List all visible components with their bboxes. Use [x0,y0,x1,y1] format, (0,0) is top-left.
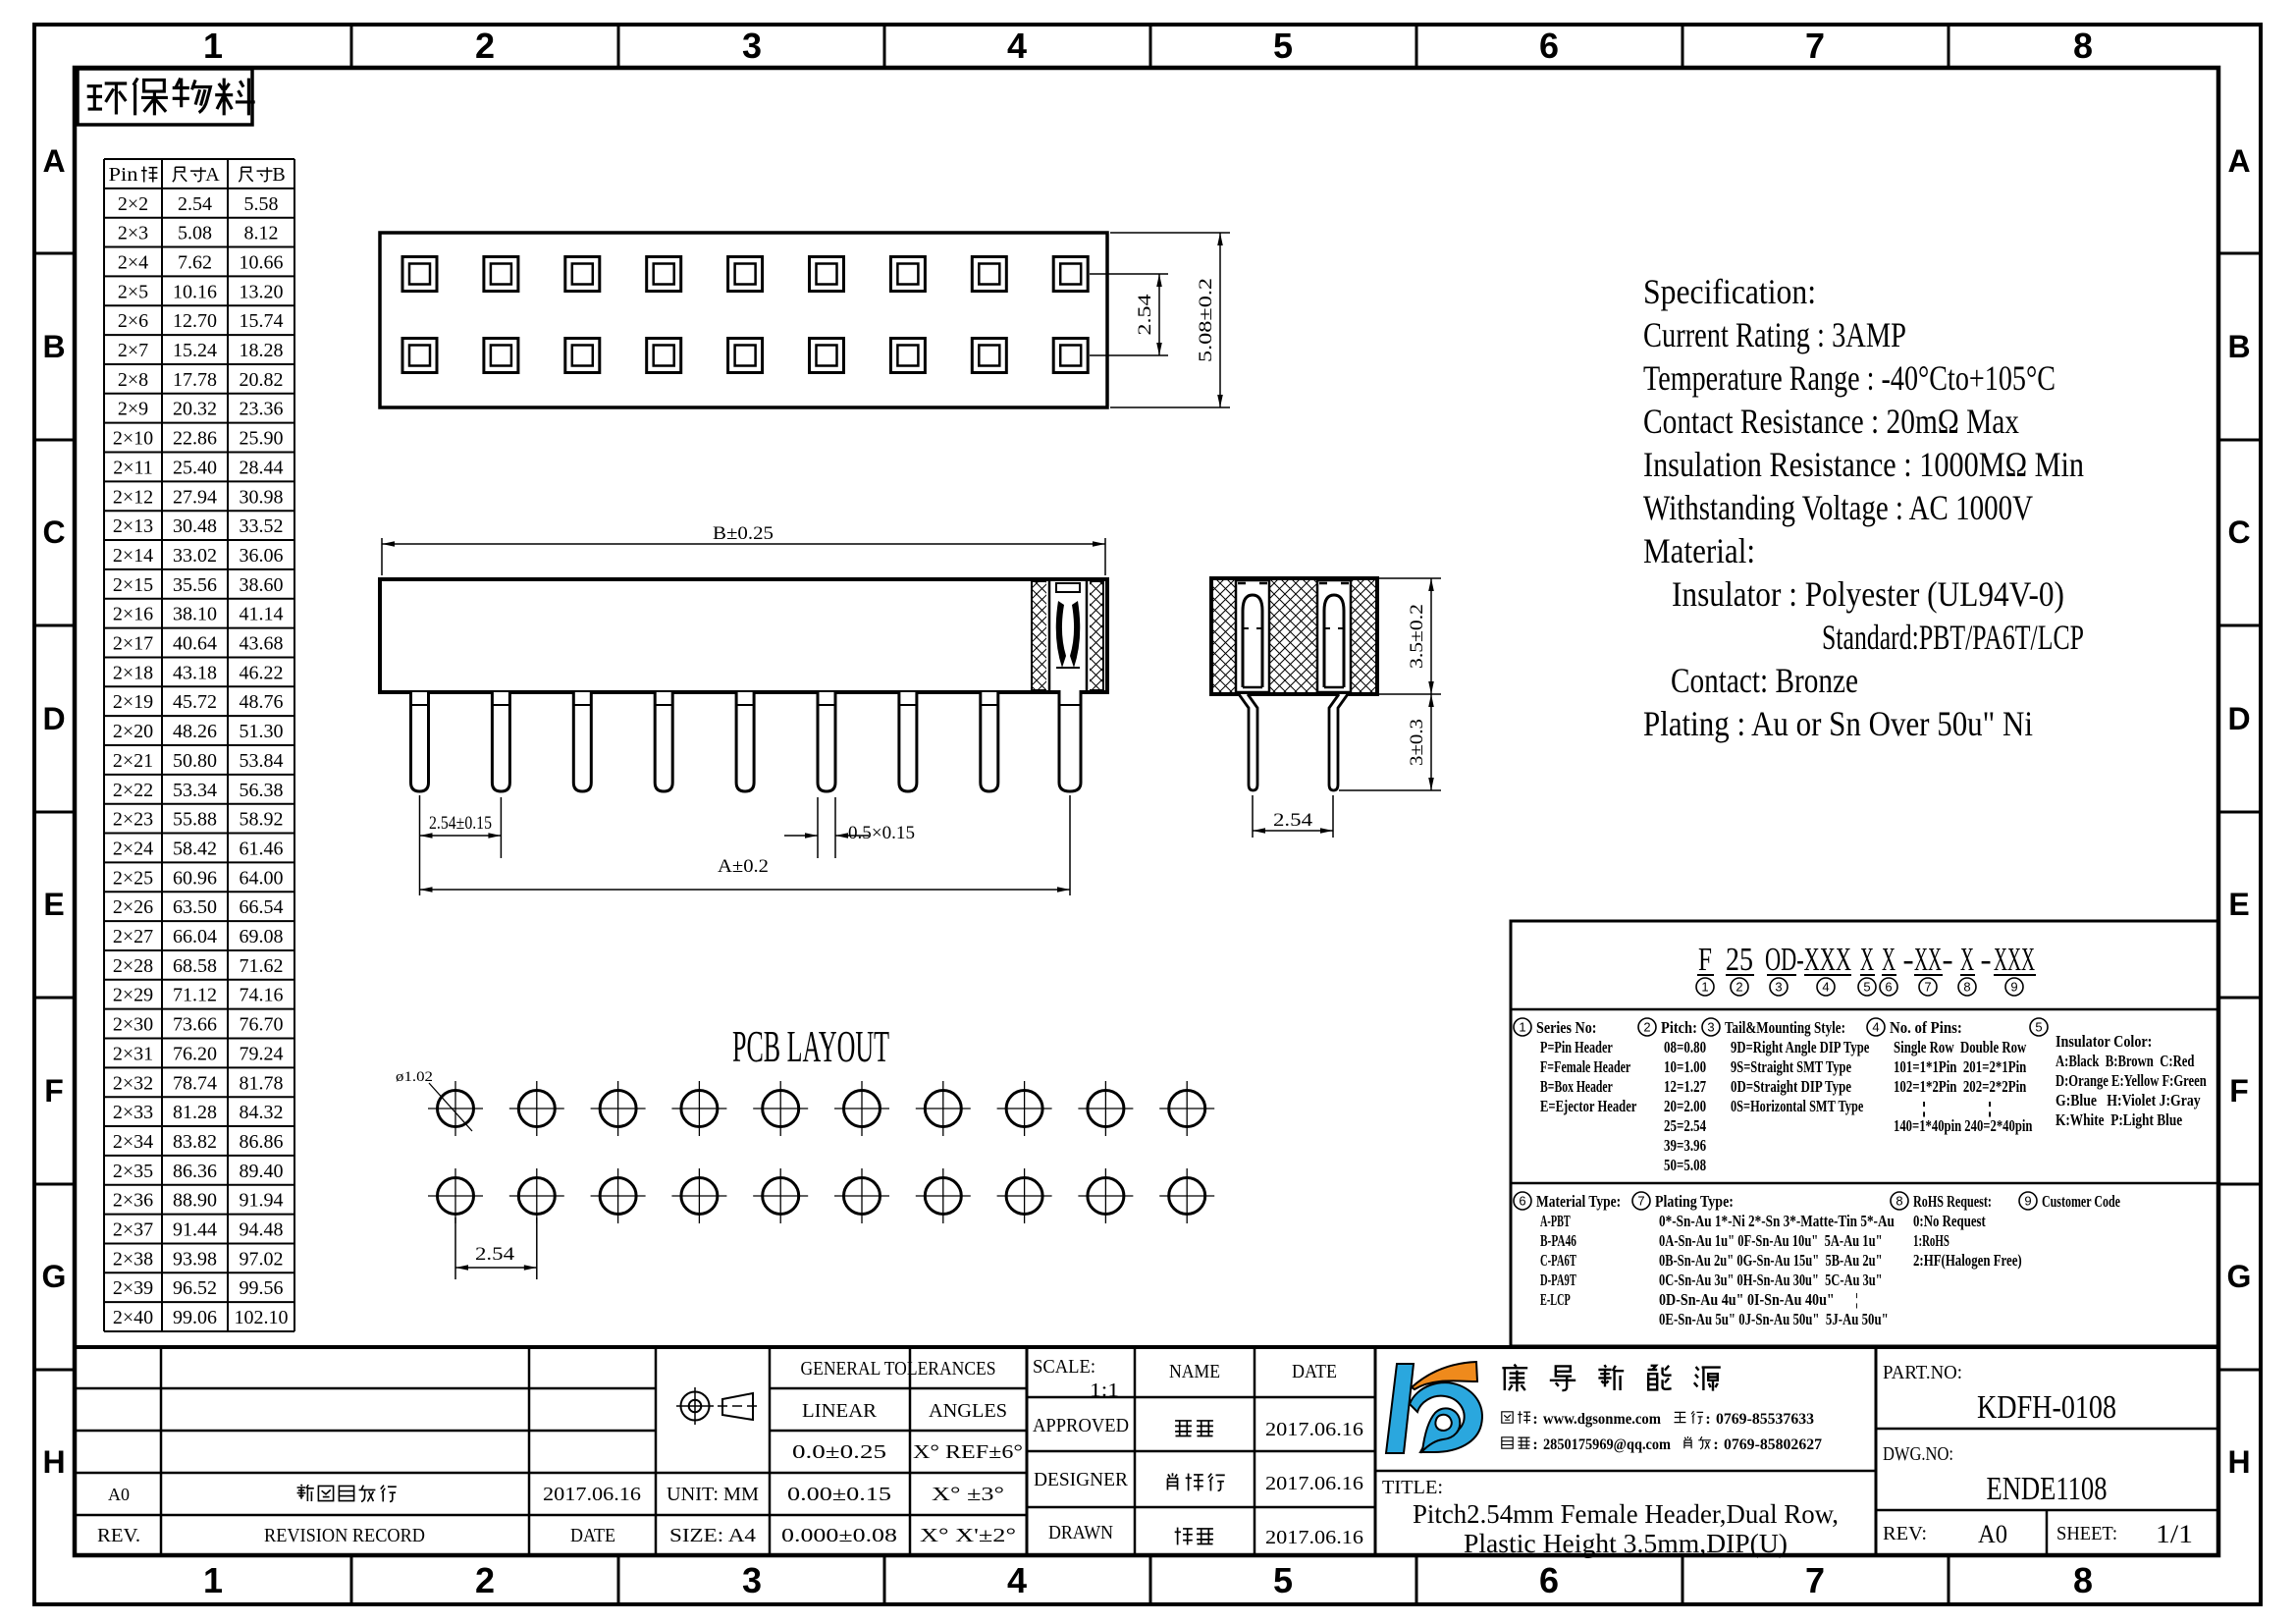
svg-text:1: 1 [203,1560,223,1600]
svg-text:2017.06.16: 2017.06.16 [1265,1527,1363,1548]
svg-text:KDFH-0108: KDFH-0108 [1977,1389,2116,1426]
svg-text:Insulator : Polyester (UL94V-0: Insulator : Polyester (UL94V-0) [1672,574,2064,614]
svg-text:Specification:: Specification: [1643,272,1816,311]
svg-text:G: G [42,1259,67,1294]
svg-text:1: 1 [1701,980,1708,995]
svg-text:E=Ejector Header: E=Ejector Header [1540,1097,1636,1115]
svg-text:7: 7 [1924,980,1931,995]
svg-text:2×33: 2×33 [113,1102,153,1123]
svg-text:3: 3 [742,1560,762,1600]
svg-text:2×3: 2×3 [118,223,148,244]
svg-text:X: X [1960,942,1974,978]
svg-text:25=2.54: 25=2.54 [1664,1116,1706,1135]
svg-text:2×39: 2×39 [113,1277,153,1299]
svg-text:41.14: 41.14 [240,604,284,625]
svg-text::: : [1532,1411,1537,1428]
svg-text:68.58: 68.58 [173,955,217,977]
svg-text:DATE: DATE [1292,1361,1337,1382]
svg-text:P=Pin Header: P=Pin Header [1540,1038,1613,1056]
svg-text:101=1*1Pin 201=2*1Pin: 101=1*1Pin 201=2*1Pin [1894,1057,2026,1076]
svg-text:1:RoHS: 1:RoHS [1913,1231,1949,1250]
svg-text:35.56: 35.56 [173,574,217,596]
svg-text:0C-Sn-Au 3u" 0H-Sn-Au 30u" 5C: 0C-Sn-Au 3u" 0H-Sn-Au 30u" 5C-Au 3u" [1659,1271,1883,1289]
svg-text:4: 4 [1872,1020,1879,1035]
svg-text:76.70: 76.70 [240,1014,284,1036]
svg-text:Insulation Resistance : 1000MΩ: Insulation Resistance : 1000MΩ Min [1643,445,2084,484]
svg-text:17.78: 17.78 [173,369,217,391]
svg-text:F=Female Header: F=Female Header [1540,1057,1630,1076]
svg-text:2×11: 2×11 [113,457,153,478]
svg-text:¦: ¦ [1987,1099,1993,1117]
svg-text:2×24: 2×24 [113,838,153,859]
svg-text:5.58: 5.58 [244,193,279,215]
svg-text:D-PA9T: D-PA9T [1540,1271,1576,1289]
svg-text:Temperature Range : -40°Cto+10: Temperature Range : -40°Cto+105°C [1643,358,2056,398]
svg-text:PART.NO:: PART.NO: [1883,1362,1962,1383]
svg-text:0D=Straight DIP Type: 0D=Straight DIP Type [1731,1077,1851,1096]
svg-text:2×35: 2×35 [113,1161,153,1182]
svg-text:2×18: 2×18 [113,662,153,683]
svg-text:2×10: 2×10 [113,428,153,450]
svg-text:2×2: 2×2 [118,193,148,215]
svg-text:www.dgsonme.com: www.dgsonme.com [1543,1411,1662,1428]
svg-text:45.72: 45.72 [173,691,217,713]
svg-text:2:HF(Halogen Free): 2:HF(Halogen Free) [1913,1251,2022,1270]
svg-text:Plating : Au or Sn Over 50u" N: Plating : Au or Sn Over 50u" Ni [1643,704,2033,743]
svg-text:0*-Sn-Au 1*-Ni 2*-Sn 3*-Matte-: 0*-Sn-Au 1*-Ni 2*-Sn 3*-Matte-Tin 5*-Au [1659,1212,1895,1230]
svg-text:79.24: 79.24 [240,1043,284,1064]
svg-text:ø1.02: ø1.02 [396,1069,433,1085]
svg-text:74.16: 74.16 [240,985,284,1006]
svg-text:28.44: 28.44 [240,457,284,478]
svg-text:91.44: 91.44 [173,1219,217,1241]
svg-text:REVISION RECORD: REVISION RECORD [264,1525,425,1546]
svg-text:Withstanding Voltage : AC 1000: Withstanding Voltage : AC 1000V [1643,488,2033,527]
svg-text:38.60: 38.60 [240,574,284,596]
svg-text:Plating Type:: Plating Type: [1655,1192,1734,1211]
svg-text:43.68: 43.68 [240,633,284,655]
svg-text:4: 4 [1822,980,1829,995]
svg-text:9: 9 [2024,1194,2031,1209]
svg-text:ANGLES: ANGLES [929,1400,1007,1422]
svg-text:23.36: 23.36 [240,399,284,420]
svg-text:0.5×0.15: 0.5×0.15 [848,823,915,843]
svg-text:89.40: 89.40 [240,1161,284,1182]
svg-text:91.94: 91.94 [240,1190,284,1212]
svg-text:SCALE:: SCALE: [1033,1356,1095,1378]
svg-text:12.70: 12.70 [173,310,217,332]
svg-text:8: 8 [1963,980,1970,995]
svg-text:DWG.NO:: DWG.NO: [1883,1443,1953,1465]
svg-text:2×14: 2×14 [113,545,153,567]
svg-text:88.90: 88.90 [173,1190,217,1212]
svg-text:86.36: 86.36 [173,1161,217,1182]
svg-text:GENERAL TOLERANCES: GENERAL TOLERANCES [801,1358,996,1380]
svg-text:2×6: 2×6 [118,310,148,332]
svg-text:08=0.80: 08=0.80 [1664,1038,1706,1056]
svg-text:2: 2 [1735,980,1742,995]
svg-text:A0: A0 [1978,1520,2007,1548]
svg-text:6: 6 [1885,980,1892,995]
svg-text:F: F [44,1073,64,1109]
svg-text:H: H [2227,1444,2250,1480]
svg-text:Pin: Pin [109,164,138,186]
svg-text:7.62: 7.62 [178,251,212,273]
svg-text:69.08: 69.08 [240,926,284,947]
svg-text:36.06: 36.06 [240,545,284,567]
svg-text:20.82: 20.82 [240,369,284,391]
svg-text:-: - [1980,942,1991,978]
svg-text:2×40: 2×40 [113,1307,153,1328]
svg-text:X° REF±6°: X° REF±6° [913,1441,1023,1463]
svg-text:66.54: 66.54 [240,896,284,918]
svg-text:6: 6 [1519,1194,1525,1209]
svg-text:86.86: 86.86 [240,1131,284,1153]
svg-text:SHEET:: SHEET: [2056,1523,2117,1544]
svg-text:15.74: 15.74 [240,310,284,332]
svg-text:B=Box Header: B=Box Header [1540,1077,1613,1096]
svg-text:102.10: 102.10 [235,1307,289,1328]
svg-text:53.34: 53.34 [173,780,217,801]
svg-text:2×15: 2×15 [113,574,153,596]
svg-text:LINEAR: LINEAR [802,1400,878,1422]
svg-text:2: 2 [475,1560,495,1600]
svg-text:B: B [272,164,285,186]
svg-text:48.26: 48.26 [173,721,217,742]
svg-text:9: 9 [2010,980,2017,995]
svg-text:63.50: 63.50 [173,896,217,918]
svg-text:2.54: 2.54 [178,193,212,215]
svg-text:Pitch2.54mm Female Header,Dual: Pitch2.54mm Female Header,Dual Row, [1413,1499,1839,1529]
svg-text:6: 6 [1539,1560,1559,1600]
svg-text:60.96: 60.96 [173,867,217,889]
svg-text:E: E [43,887,64,922]
svg-text:5: 5 [1273,26,1293,66]
svg-text:2×34: 2×34 [113,1131,153,1153]
svg-text:3.5±0.2: 3.5±0.2 [1407,604,1427,669]
svg-text:0B-Sn-Au 2u" 0G-Sn-Au 15u" 5B: 0B-Sn-Au 2u" 0G-Sn-Au 15u" 5B-Au 2u" [1659,1251,1883,1270]
svg-text:H: H [42,1444,65,1480]
svg-text:99.56: 99.56 [240,1277,284,1299]
svg-text:46.22: 46.22 [240,662,284,683]
svg-text:58.92: 58.92 [240,809,284,831]
svg-text:61.46: 61.46 [240,838,284,859]
svg-text:DATE: DATE [570,1525,615,1546]
svg-text:REV.: REV. [97,1525,140,1546]
svg-text:2×23: 2×23 [113,809,153,831]
svg-text:RoHS Request:: RoHS Request: [1913,1192,1992,1211]
svg-text:1: 1 [1519,1020,1525,1035]
svg-text:X° ±3°: X° ±3° [932,1484,1004,1505]
svg-text:81.28: 81.28 [173,1102,217,1123]
svg-text:2017.06.16: 2017.06.16 [1265,1473,1363,1494]
svg-text:0.0±0.25: 0.0±0.25 [792,1441,886,1463]
svg-text:83.82: 83.82 [173,1131,217,1153]
svg-text:Customer Code: Customer Code [2042,1192,2120,1211]
svg-text:39=3.96: 39=3.96 [1664,1136,1706,1155]
svg-text:X: X [1860,942,1874,978]
svg-text:D: D [2227,701,2250,736]
svg-text:5: 5 [2035,1020,2042,1035]
svg-text:2×22: 2×22 [113,780,153,801]
svg-text:Standard:PBT/PA6T/LCP: Standard:PBT/PA6T/LCP [1822,618,2084,657]
svg-text:2.54: 2.54 [1135,294,1155,336]
svg-text:50.80: 50.80 [173,750,217,772]
svg-text:8.12: 8.12 [244,223,279,244]
svg-text:2×9: 2×9 [118,399,148,420]
svg-text:5: 5 [1863,980,1870,995]
svg-text:8: 8 [1896,1194,1902,1209]
svg-text:A: A [2227,143,2250,179]
svg-text:81.78: 81.78 [240,1072,284,1094]
svg-text::: : [1532,1436,1537,1453]
svg-text:Single Row Double Row: Single Row Double Row [1894,1038,2026,1056]
svg-text:A: A [205,164,220,186]
svg-text:93.98: 93.98 [173,1248,217,1270]
svg-text:0769-85537633: 0769-85537633 [1716,1411,1814,1428]
svg-text:2×7: 2×7 [118,340,148,361]
svg-text:Insulator Color:: Insulator Color: [2056,1032,2152,1051]
svg-text:10=1.00: 10=1.00 [1664,1057,1706,1076]
svg-text:73.66: 73.66 [173,1014,217,1036]
svg-text:F: F [1698,942,1712,978]
svg-text:2850175969@qq.com: 2850175969@qq.com [1543,1436,1672,1453]
svg-text:71.62: 71.62 [240,955,284,977]
svg-text:5.08±0.2: 5.08±0.2 [1196,278,1216,362]
svg-text:2×19: 2×19 [113,691,153,713]
svg-text:12=1.27: 12=1.27 [1664,1077,1706,1096]
svg-text:7: 7 [1805,1560,1825,1600]
svg-text:Pitch:: Pitch: [1661,1018,1697,1037]
svg-text:33.02: 33.02 [173,545,217,567]
svg-text:Plastic Height 3.5mm,DIP(U): Plastic Height 3.5mm,DIP(U) [1464,1529,1788,1558]
svg-text:51.30: 51.30 [240,721,284,742]
svg-text:2×29: 2×29 [113,985,153,1006]
svg-text:C: C [42,514,65,550]
svg-text:C: C [2227,514,2250,550]
svg-text:DRAWN: DRAWN [1048,1522,1113,1543]
svg-text:2×5: 2×5 [118,281,148,302]
svg-text:0E-Sn-Au 5u" 0J-Sn-Au 50u" 5J: 0E-Sn-Au 5u" 0J-Sn-Au 50u" 5J-Au 50u" [1659,1310,1889,1328]
svg-text:9D=Right Angle DIP Type: 9D=Right Angle DIP Type [1731,1038,1869,1056]
svg-text:6: 6 [1539,26,1559,66]
svg-text:0.000±0.08: 0.000±0.08 [781,1525,897,1546]
svg-text:Series No:: Series No: [1536,1018,1597,1037]
svg-text:Contact Resistance : 20mΩ Max: Contact Resistance : 20mΩ Max [1643,402,2019,441]
svg-text:No. of Pins:: No. of Pins: [1890,1018,1962,1037]
svg-text:33.52: 33.52 [240,515,284,537]
svg-text:2×21: 2×21 [113,750,153,772]
svg-text:4: 4 [1007,1560,1027,1600]
svg-text:Current Rating : 3AMP: Current Rating : 3AMP [1643,315,1906,354]
svg-text:18.28: 18.28 [240,340,284,361]
svg-text:E-LCP: E-LCP [1540,1290,1571,1309]
svg-text:1:1: 1:1 [1090,1380,1119,1401]
svg-text:2×12: 2×12 [113,486,153,508]
svg-text:38.10: 38.10 [173,604,217,625]
svg-text:2×32: 2×32 [113,1072,153,1094]
svg-text:27.94: 27.94 [173,486,217,508]
svg-text:25.40: 25.40 [173,457,217,478]
svg-text:2.54: 2.54 [1273,810,1313,831]
svg-text:10.66: 10.66 [240,251,284,273]
svg-text:A-PBT: A-PBT [1540,1212,1571,1230]
svg-text:94.48: 94.48 [240,1219,284,1241]
svg-text:A:Black B:Brown C:Red: A:Black B:Brown C:Red [2056,1052,2194,1070]
svg-text:8: 8 [2073,1560,2093,1600]
svg-text:A0: A0 [108,1485,130,1504]
svg-text:25: 25 [1726,942,1753,978]
svg-text:96.52: 96.52 [173,1277,217,1299]
svg-text:7: 7 [1637,1194,1644,1209]
svg-text:2: 2 [475,26,495,66]
svg-text:20=2.00: 20=2.00 [1664,1097,1706,1115]
svg-text:X: X [1882,942,1896,978]
svg-text:2×31: 2×31 [113,1043,153,1064]
svg-text:2×36: 2×36 [113,1190,153,1212]
svg-text:0769-85802627: 0769-85802627 [1724,1436,1822,1453]
svg-text:E: E [2228,887,2249,922]
svg-text::: : [1713,1436,1718,1453]
svg-text:71.12: 71.12 [173,985,217,1006]
svg-text:2×17: 2×17 [113,633,153,655]
svg-text:B: B [42,329,65,364]
svg-text:2017.06.16: 2017.06.16 [1265,1419,1363,1440]
svg-text:XXX: XXX [1994,942,2035,978]
svg-text:64.00: 64.00 [240,867,284,889]
svg-text:2×27: 2×27 [113,926,153,947]
svg-text:84.32: 84.32 [240,1102,284,1123]
svg-text:A: A [42,143,65,179]
svg-text:OD-XXX: OD-XXX [1765,942,1851,978]
svg-text:PCB LAYOUT: PCB LAYOUT [732,1021,889,1071]
svg-text:2×28: 2×28 [113,955,153,977]
svg-text:2×38: 2×38 [113,1248,153,1270]
svg-text:D: D [42,701,65,736]
svg-text:5: 5 [1273,1560,1293,1600]
svg-text:2.54: 2.54 [475,1244,515,1265]
svg-text:D:Orange E:Yellow F:Green: D:Orange E:Yellow F:Green [2056,1071,2207,1090]
svg-text:0S=Horizontal SMT Type: 0S=Horizontal SMT Type [1731,1097,1863,1115]
svg-text:30.48: 30.48 [173,515,217,537]
svg-text:40.64: 40.64 [173,633,217,655]
svg-text:140=1*40pin 240=2*40pin: 140=1*40pin 240=2*40pin [1894,1116,2032,1135]
svg-text:3: 3 [742,26,762,66]
svg-text:Tail&Mounting Style:: Tail&Mounting Style: [1725,1018,1845,1037]
svg-text:48.76: 48.76 [240,691,284,713]
svg-text:ENDE1108: ENDE1108 [1987,1471,2108,1507]
svg-text:53.84: 53.84 [240,750,284,772]
svg-text:3±0.3: 3±0.3 [1407,719,1427,766]
svg-text:1: 1 [203,26,223,66]
svg-text:B: B [2227,329,2250,364]
svg-text:NAME: NAME [1169,1361,1220,1382]
svg-text:-: - [1902,942,1913,978]
svg-text:K:White P:Light Blue: K:White P:Light Blue [2056,1110,2182,1129]
svg-text:G:Blue H:Violet J:Gray: G:Blue H:Violet J:Gray [2056,1091,2201,1110]
svg-text:20.32: 20.32 [173,399,217,420]
svg-text:78.74: 78.74 [173,1072,217,1094]
svg-text:66.04: 66.04 [173,926,217,947]
svg-text:0:No Request: 0:No Request [1913,1212,1986,1230]
svg-text:Material Type:: Material Type: [1536,1192,1621,1211]
svg-text:9S=Straight SMT Type: 9S=Straight SMT Type [1731,1057,1851,1076]
svg-text:APPROVED: APPROVED [1033,1415,1129,1436]
svg-text:2: 2 [1643,1020,1650,1035]
svg-text:2×25: 2×25 [113,867,153,889]
svg-text:4: 4 [1007,26,1027,66]
svg-text:0.00±0.15: 0.00±0.15 [787,1484,891,1505]
svg-text:2×8: 2×8 [118,369,148,391]
svg-text:XX: XX [1914,942,1942,978]
svg-text:G: G [2227,1259,2252,1294]
svg-text:X° X'±2°: X° X'±2° [920,1525,1016,1546]
svg-text:3: 3 [1707,1020,1714,1035]
svg-text:55.88: 55.88 [173,809,217,831]
svg-text:22.86: 22.86 [173,428,217,450]
svg-text:25.90: 25.90 [240,428,284,450]
svg-text::: : [1705,1411,1710,1428]
svg-text:13.20: 13.20 [240,281,284,302]
svg-text:76.20: 76.20 [173,1043,217,1064]
svg-text:0A-Sn-Au 1u" 0F-Sn-Au 10u" 5A: 0A-Sn-Au 1u" 0F-Sn-Au 10u" 5A-Au 1u" [1659,1231,1883,1250]
svg-text:0D-Sn-Au 4u" 0I-Sn-Au 40u": 0D-Sn-Au 4u" 0I-Sn-Au 40u" ¦ [1659,1290,1858,1309]
svg-text:Material:: Material: [1643,531,1755,570]
svg-text:102=1*2Pin 202=2*2Pin: 102=1*2Pin 202=2*2Pin [1894,1077,2026,1096]
svg-text:C-PA6T: C-PA6T [1540,1251,1576,1270]
svg-text:3: 3 [1775,980,1782,995]
svg-text:UNIT: MM: UNIT: MM [667,1484,759,1505]
svg-text:2×37: 2×37 [113,1219,153,1241]
svg-text:5.08: 5.08 [178,223,212,244]
svg-text:7: 7 [1805,26,1825,66]
svg-text:2×30: 2×30 [113,1014,153,1036]
svg-text:REV:: REV: [1883,1523,1927,1544]
svg-text:¦: ¦ [1921,1099,1927,1117]
svg-text:Contact: Bronze: Contact: Bronze [1671,661,1858,700]
svg-text:10.16: 10.16 [173,281,217,302]
svg-text:2×26: 2×26 [113,896,153,918]
svg-text:56.38: 56.38 [240,780,284,801]
svg-text:99.06: 99.06 [173,1307,217,1328]
svg-text:A±0.2: A±0.2 [718,856,769,877]
svg-text:50=5.08: 50=5.08 [1664,1156,1706,1174]
svg-text:58.42: 58.42 [173,838,217,859]
svg-text:DESIGNER: DESIGNER [1034,1469,1129,1490]
svg-text:8: 8 [2073,26,2093,66]
svg-text:SIZE: A4: SIZE: A4 [669,1525,756,1546]
svg-text:2×13: 2×13 [113,515,153,537]
svg-text:B±0.25: B±0.25 [713,523,774,544]
svg-text:97.02: 97.02 [240,1248,284,1270]
svg-text:2017.06.16: 2017.06.16 [543,1484,641,1505]
svg-text:F: F [2229,1073,2249,1109]
svg-text:2.54±0.15: 2.54±0.15 [429,813,492,834]
svg-text:2×16: 2×16 [113,604,153,625]
svg-text:2×20: 2×20 [113,721,153,742]
svg-text:TITLE:: TITLE: [1382,1477,1443,1498]
svg-text:2×4: 2×4 [118,251,148,273]
svg-text:B-PA46: B-PA46 [1540,1231,1576,1250]
svg-text:43.18: 43.18 [173,662,217,683]
svg-text:15.24: 15.24 [173,340,217,361]
svg-text:-: - [1942,942,1952,978]
svg-text:30.98: 30.98 [240,486,284,508]
svg-text:1/1: 1/1 [2156,1520,2193,1548]
